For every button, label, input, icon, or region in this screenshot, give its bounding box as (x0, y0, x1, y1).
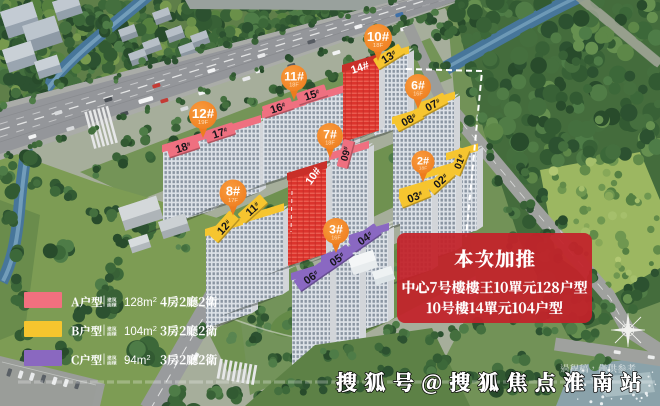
svg-text:18F: 18F (289, 83, 299, 89)
svg-text:104m2: 104m2 (124, 324, 157, 338)
svg-text:8#: 8# (226, 184, 240, 199)
svg-text:128m2: 128m2 (124, 295, 157, 309)
svg-text:7#: 7# (323, 128, 337, 142)
svg-text:3#: 3# (329, 223, 343, 237)
svg-text:17F: 17F (228, 198, 238, 204)
svg-text:18F: 18F (325, 141, 335, 147)
svg-text:2#: 2# (417, 155, 429, 167)
svg-text:12#: 12# (192, 106, 215, 121)
svg-text:19F: 19F (198, 120, 209, 126)
svg-text:16F: 16F (413, 92, 423, 98)
svg-text:10#: 10# (367, 29, 390, 44)
svg-text:18F: 18F (419, 166, 427, 172)
svg-text:11#: 11# (284, 70, 304, 84)
svg-text:6#: 6# (411, 79, 425, 93)
svg-text:16F: 16F (331, 236, 341, 242)
svg-text:18F: 18F (373, 43, 384, 49)
